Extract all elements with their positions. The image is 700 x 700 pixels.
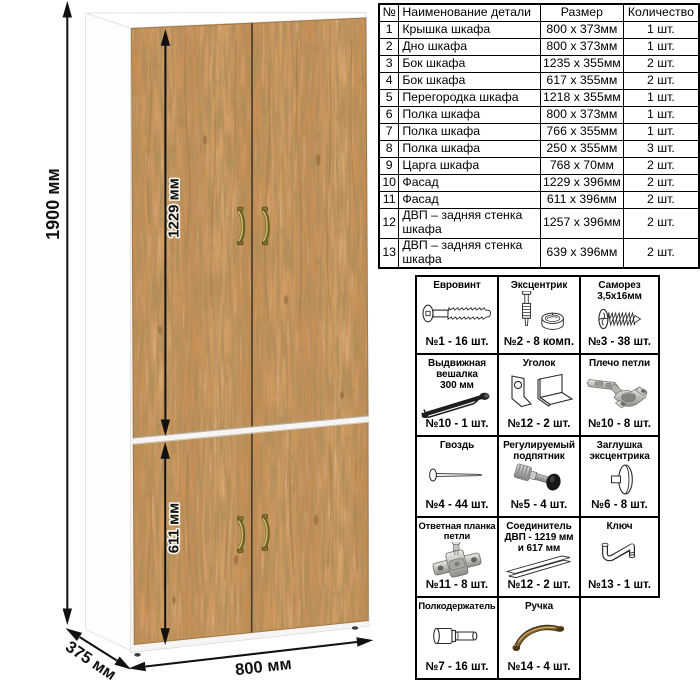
svg-text:611 мм: 611 мм [166,503,183,554]
svg-text:800 мм: 800 мм [234,655,292,679]
svg-text:1900 мм: 1900 мм [43,168,63,240]
svg-text:1229 мм: 1229 мм [166,178,183,238]
